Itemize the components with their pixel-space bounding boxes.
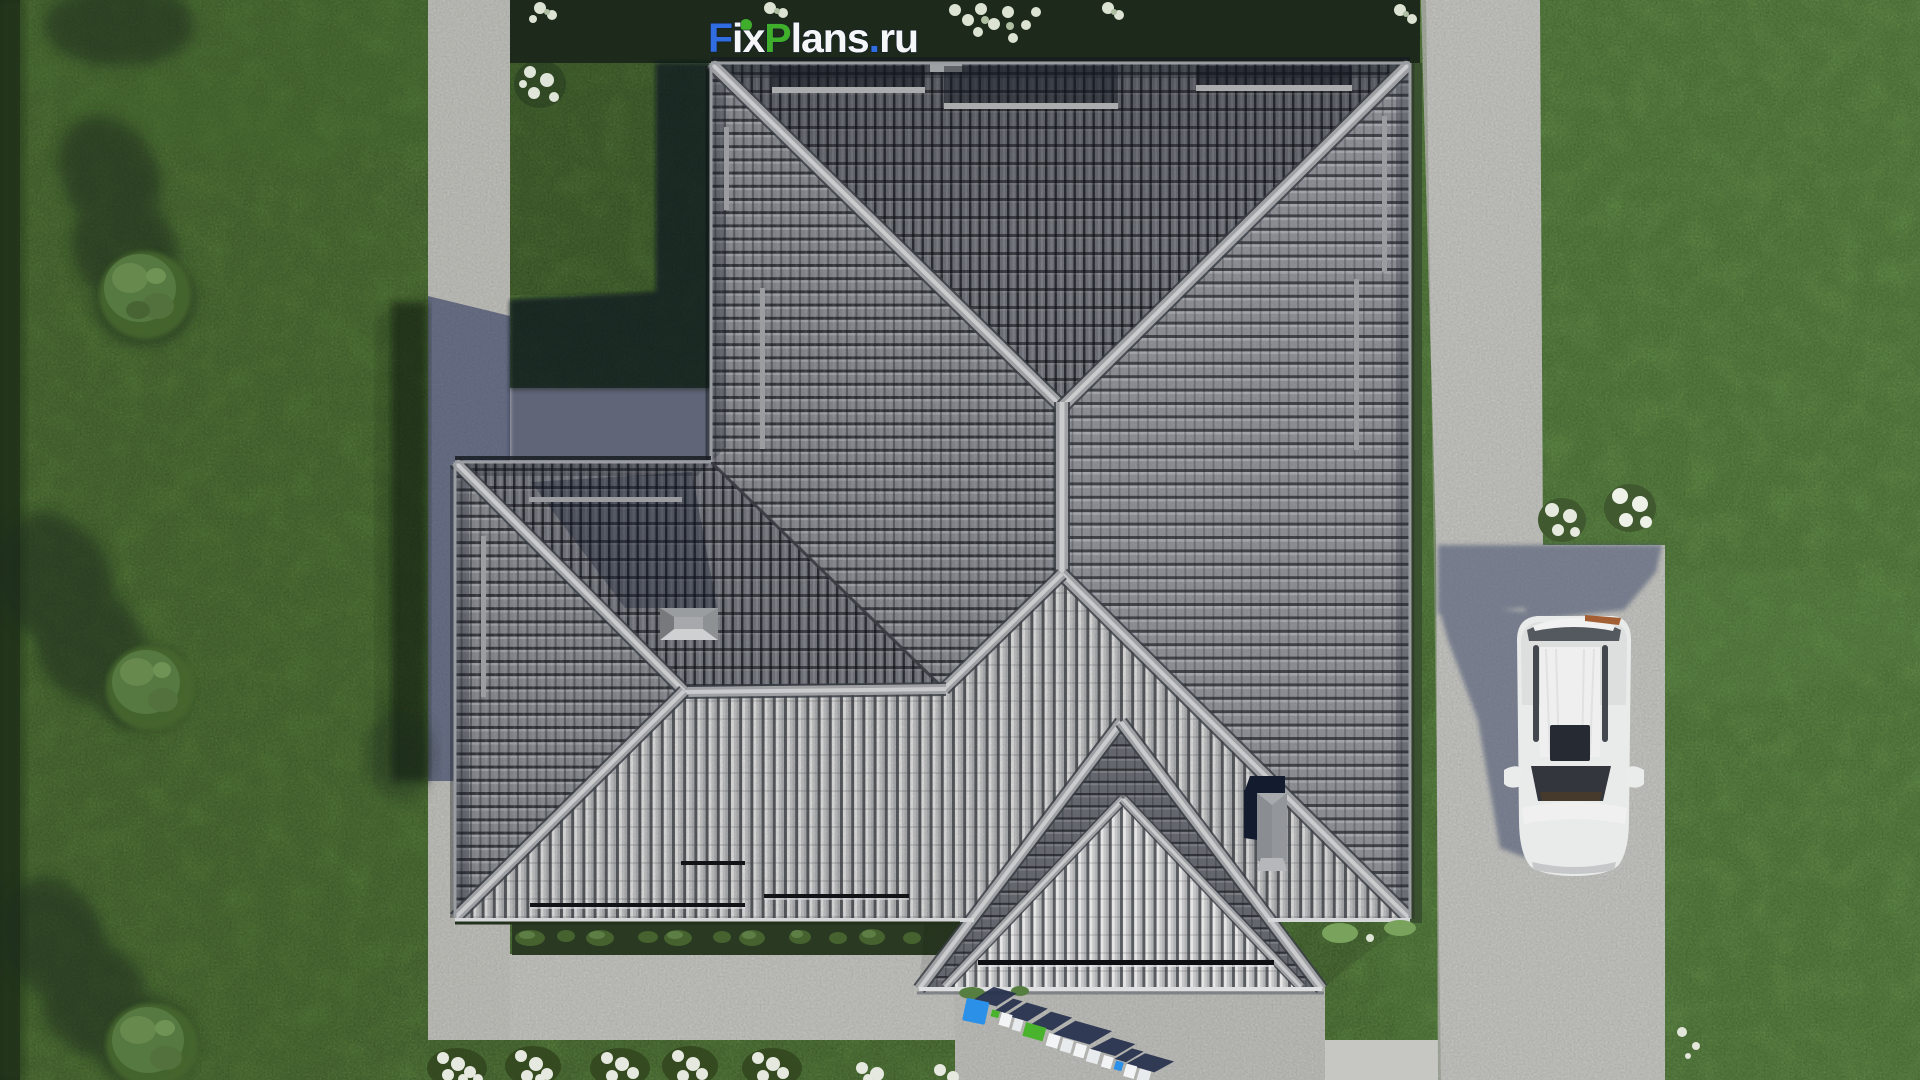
svg-text:FixPlans.ru: FixPlans.ru: [708, 15, 918, 61]
